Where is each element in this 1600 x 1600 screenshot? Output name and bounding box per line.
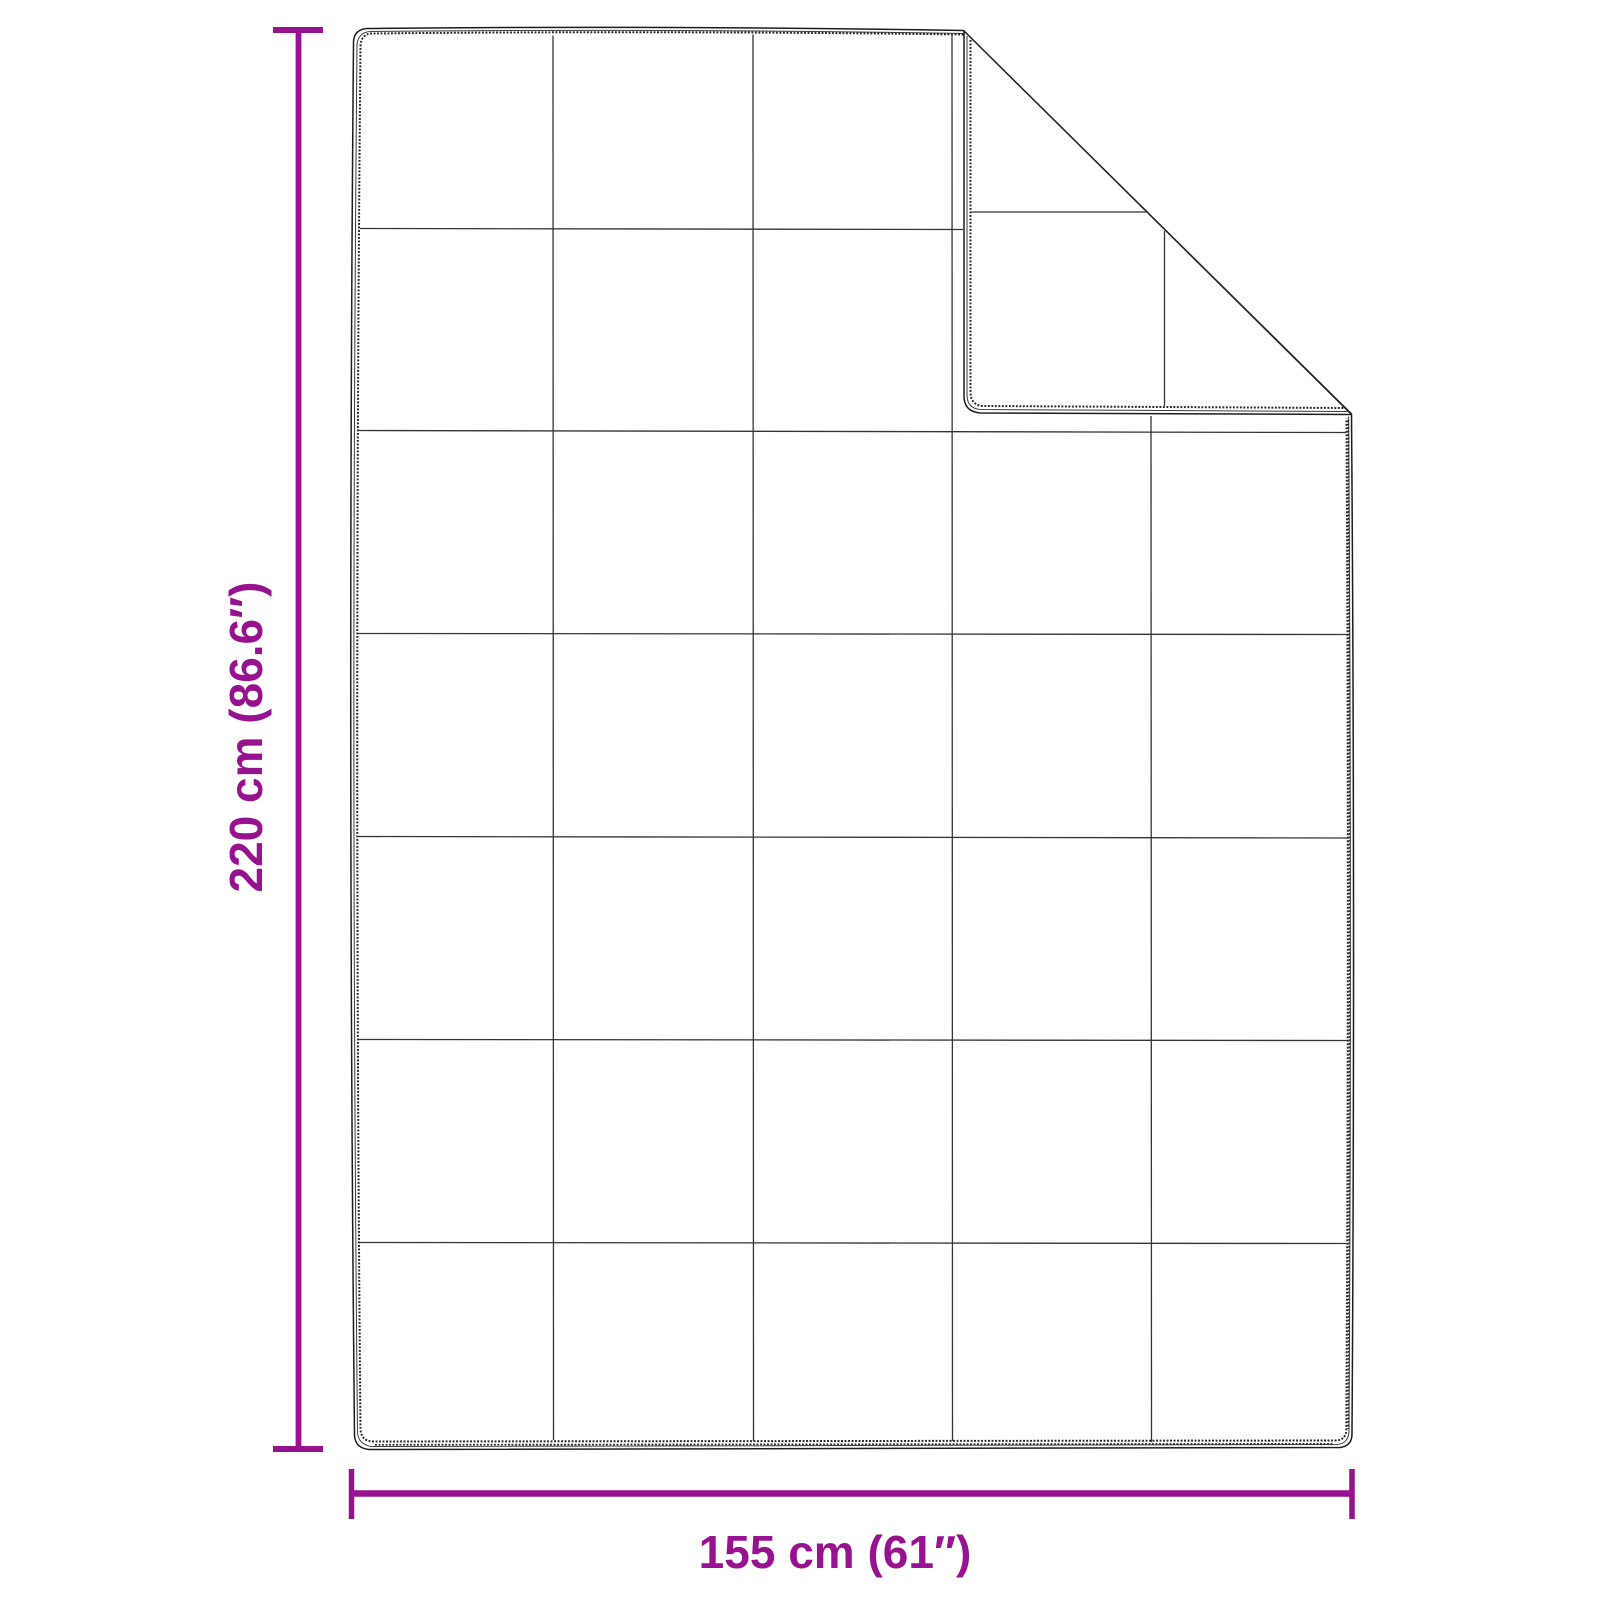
svg-text:155 cm (61″): 155 cm (61″) bbox=[699, 1526, 972, 1578]
svg-text:220 cm (86.6″): 220 cm (86.6″) bbox=[220, 582, 272, 893]
